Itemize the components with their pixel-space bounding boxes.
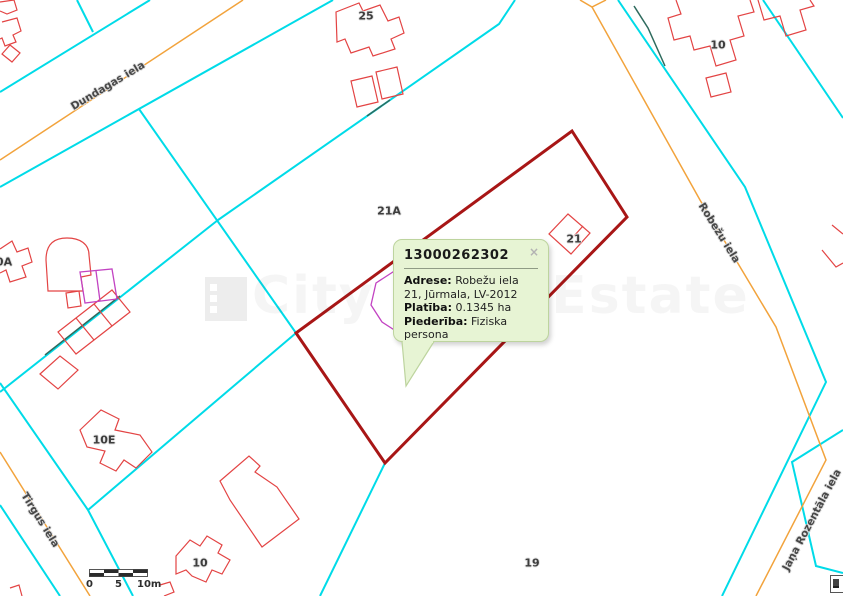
popup-close-icon[interactable]: × bbox=[529, 246, 539, 258]
scale-label-start: 0 bbox=[86, 579, 93, 590]
map-control-icon bbox=[833, 579, 839, 588]
parcel-info-popup: 13000262302 × Adrese: Robežu iela 21, Jū… bbox=[393, 239, 549, 342]
popup-cadastre-number: 13000262302 bbox=[404, 248, 538, 263]
parcel-label-10-ne: 10 bbox=[710, 39, 725, 52]
parcel-label-25: 25 bbox=[358, 10, 373, 23]
map-canvas[interactable]: City Real Estate bbox=[0, 0, 843, 596]
parcel-label-19: 19 bbox=[524, 557, 539, 570]
parcel-label-21: 21 bbox=[566, 233, 581, 246]
popup-area-value: 0.1345 ha bbox=[455, 301, 511, 314]
popup-area-label: Platība: bbox=[404, 301, 452, 314]
popup-ownership-label: Piederība: bbox=[404, 315, 468, 328]
popup-address-label: Adrese: bbox=[404, 274, 452, 287]
parcel-label-21a: 21A bbox=[377, 205, 401, 218]
scale-label-end: 10m bbox=[137, 579, 161, 590]
popup-row-address: Adrese: Robežu iela 21, Jūrmala, LV-2012 bbox=[404, 274, 538, 301]
watermark-logo bbox=[205, 277, 247, 321]
parcel-label-10-s: 10 bbox=[192, 557, 207, 570]
parcel-label-0a: 0A bbox=[0, 256, 12, 269]
scale-label-middle: 5 bbox=[115, 579, 122, 590]
popup-row-ownership: Piederība: Fiziska persona bbox=[404, 315, 538, 342]
map-control-box[interactable] bbox=[830, 575, 843, 593]
popup-divider bbox=[404, 268, 538, 269]
parcel-label-10e: 10E bbox=[93, 434, 116, 447]
watermark-logo-dots bbox=[210, 284, 217, 291]
popup-tail bbox=[395, 339, 455, 391]
scale-bar bbox=[89, 569, 151, 579]
popup-row-area: Platība: 0.1345 ha bbox=[404, 301, 538, 315]
